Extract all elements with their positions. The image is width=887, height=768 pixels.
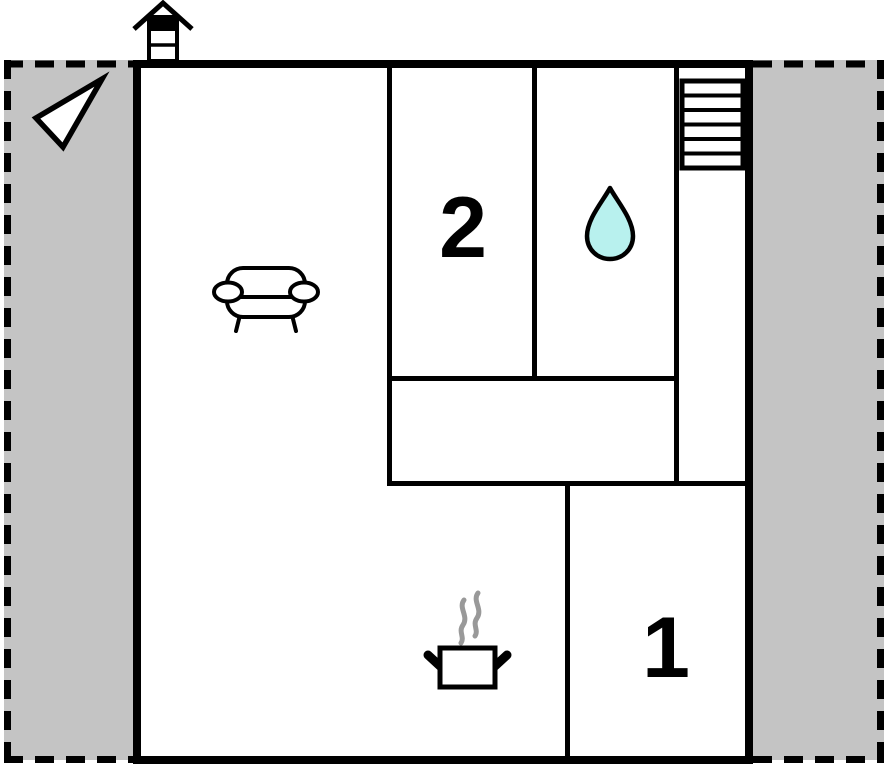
pot [428,648,507,687]
wall-interior-corridor-left [674,68,679,486]
wall-exterior-bottom [133,756,753,764]
chimney-cap-band [149,17,177,31]
pot-body [440,648,495,687]
room-label-1: 1 [642,600,690,696]
floor-plan-canvas: 2 1 [0,0,887,768]
stairs-icon [682,81,743,168]
floor-plan: 2 1 [0,0,887,768]
wall-interior-hall-bottom [387,481,745,486]
outdoor-area-left [4,60,133,760]
outdoor-area-right [753,60,884,760]
room-label-2: 2 [439,180,487,276]
sofa-armrest-right [290,283,318,302]
wall-exterior-left [133,60,141,764]
wall-interior-rooms-bottom [387,376,679,381]
chimney-icon [134,3,192,61]
wall-interior-room2-bath-divider [532,68,537,381]
wall-exterior-top [133,60,753,68]
wall-exterior-right [745,60,753,764]
sofa-armrest-left [214,283,242,302]
wall-interior-room2-left [387,68,392,486]
wall-interior-room1-left [565,486,570,756]
